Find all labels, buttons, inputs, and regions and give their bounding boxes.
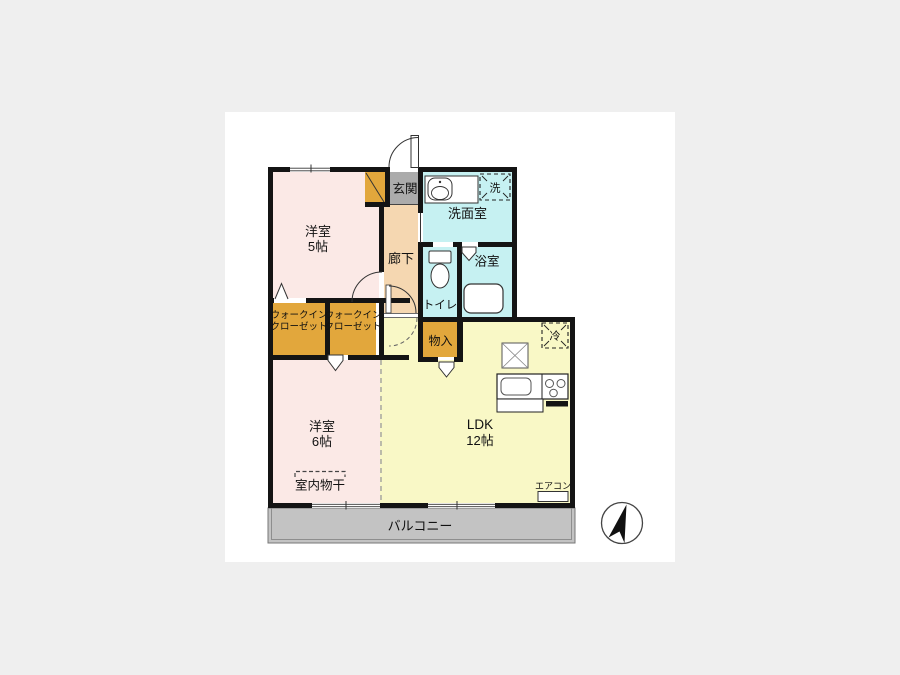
- label-aircon: エアコン: [535, 481, 571, 491]
- label-toilet: トイレ: [423, 300, 458, 312]
- kitchen-counter: [497, 374, 568, 412]
- kitchen-counter-lower: [497, 399, 543, 412]
- label-ldk-size: 12帖: [466, 433, 493, 448]
- label-bedroom6-size: 6帖: [312, 434, 332, 449]
- label-washer: 洗: [490, 182, 501, 195]
- kitchen-sink-icon: [501, 378, 531, 395]
- label-bathroom: 浴室: [474, 254, 499, 269]
- label-bedroom5-size: 5帖: [308, 239, 328, 254]
- label-balcony: バルコニー: [388, 519, 453, 534]
- label-entrance: 玄関: [392, 181, 417, 196]
- floorplan-canvas: 洋室 5帖 玄関 洗面室 洗 廊下 トイレ 浴室 ウォークイン クローゼット ウ…: [225, 112, 675, 562]
- room-ldk-hall-part: [384, 318, 418, 360]
- front-door-leaf: [411, 136, 419, 168]
- label-refrigerator: 冷: [550, 330, 561, 343]
- aircon-unit: [538, 492, 568, 502]
- label-wic-left-line1: ウォークイン: [270, 310, 327, 321]
- hallway-door-leaf: [386, 285, 391, 313]
- label-hallway: 廊下: [388, 251, 414, 266]
- label-bedroom5-name: 洋室: [305, 224, 331, 239]
- floorplan-svg: 洋室 5帖 玄関 洗面室 洗 廊下 トイレ 浴室 ウォークイン クローゼット ウ…: [225, 112, 675, 562]
- kitchen-cabinet-icon: [502, 343, 528, 368]
- bathtub-icon: [464, 284, 503, 313]
- label-storage: 物入: [428, 334, 452, 348]
- label-ldk-name: LDK: [467, 417, 493, 432]
- label-wic-right-line2: クローゼット: [324, 321, 381, 333]
- label-washroom: 洗面室: [448, 206, 487, 221]
- label-indoor-drying: 室内物干: [295, 478, 345, 493]
- label-bedroom6-name: 洋室: [309, 419, 335, 434]
- north-arrow-icon: [602, 503, 643, 544]
- kitchen-wall-stub: [546, 401, 568, 407]
- label-wic-right-line1: ウォークイン: [324, 310, 381, 321]
- label-wic-left-line2: クローゼット: [270, 321, 327, 333]
- toilet-icon: [429, 251, 451, 288]
- washbasin-icon: [425, 176, 478, 203]
